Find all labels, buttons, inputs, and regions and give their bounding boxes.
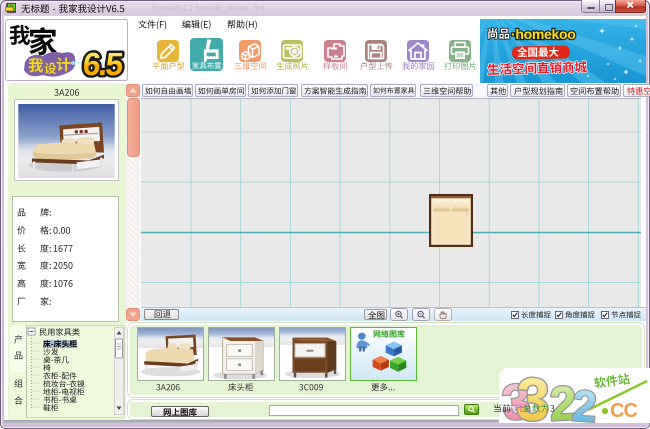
svg-text:CC: CC [610,400,637,422]
svg-text:·homekoo: ·homekoo [511,26,576,42]
svg-text:3: 3 [515,365,551,429]
svg-text:6.5: 6.5 [81,46,124,79]
